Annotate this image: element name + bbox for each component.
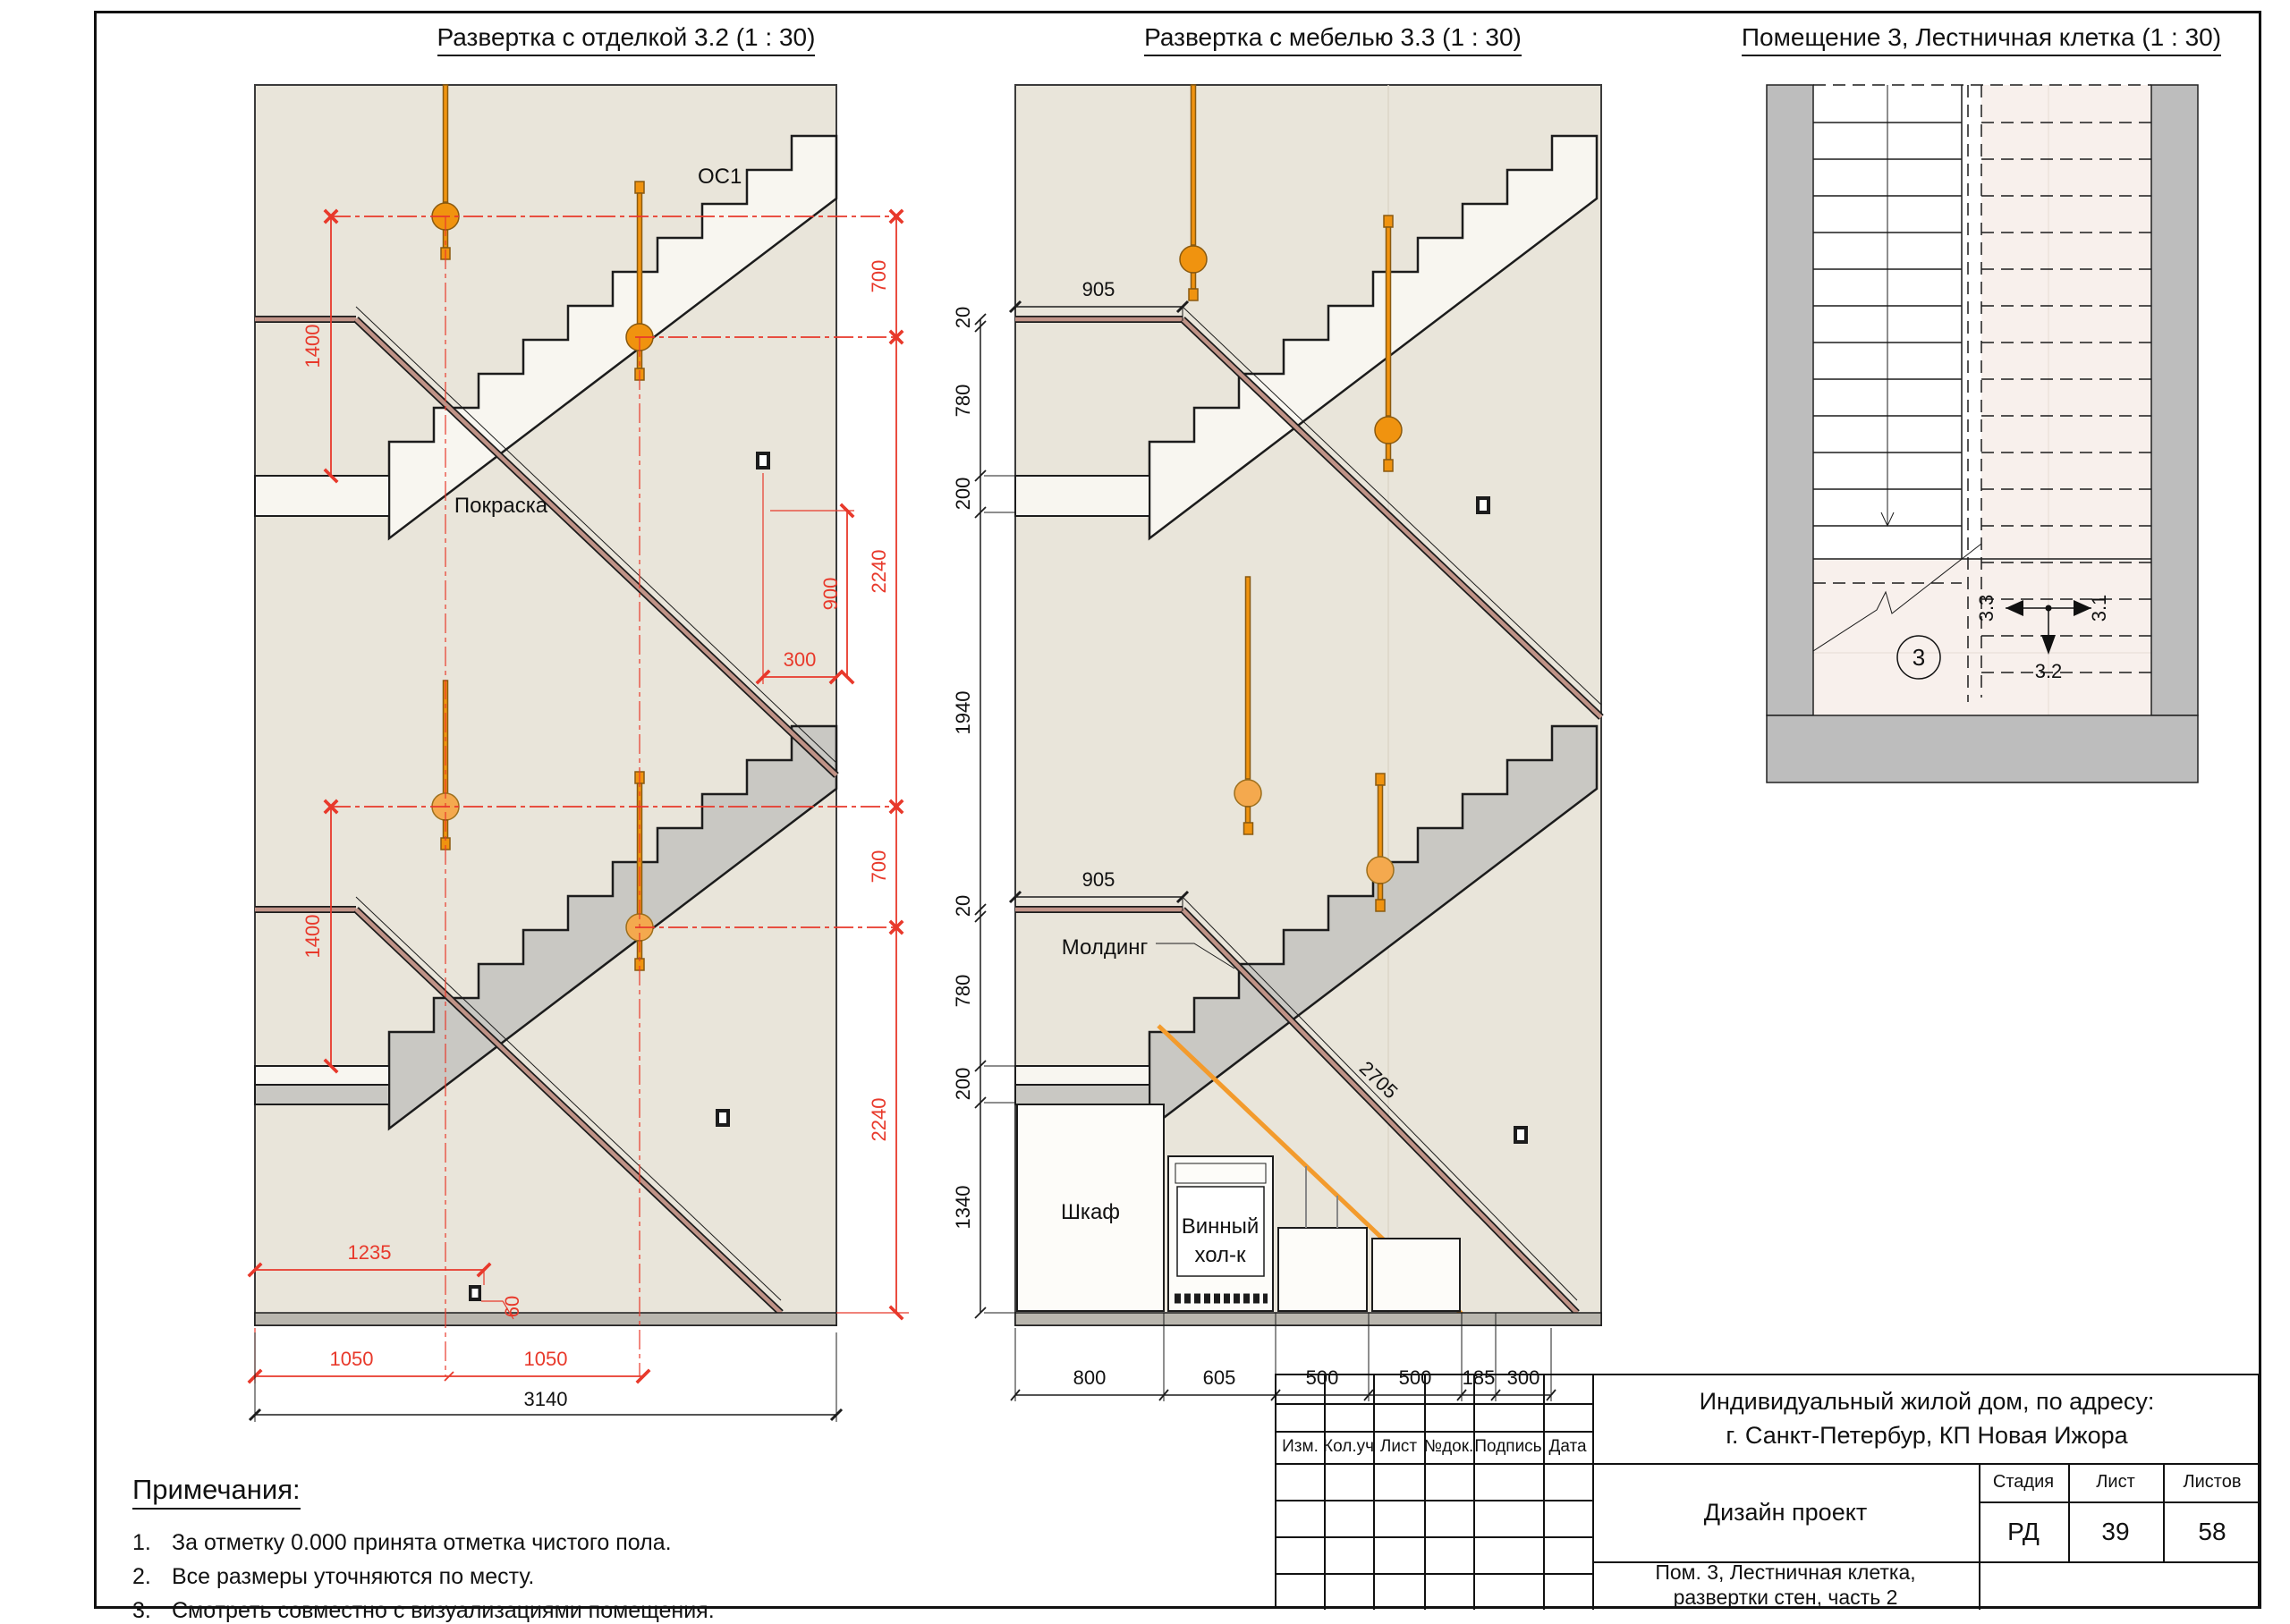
floor-slab [1015, 1313, 1601, 1325]
col-data: Дата [1543, 1431, 1592, 1463]
socket-floor-icon [469, 1285, 481, 1301]
label-molding: Молдинг [1062, 935, 1149, 960]
title-view-3-3-text: Развертка с мебелью 3.3 (1 : 30) [1144, 23, 1522, 56]
title-view-3-2-text: Развертка с отделкой 3.2 (1 : 30) [437, 23, 816, 56]
dim-60: 60 [501, 1296, 523, 1317]
dim-1235: 1235 [348, 1241, 392, 1264]
sheets-value: 58 [2163, 1501, 2261, 1561]
dim-700-upper: 700 [868, 260, 890, 293]
stage-value: РД [1979, 1501, 2068, 1561]
dim-3140: 3140 [524, 1388, 568, 1410]
upper-landing-slab [255, 476, 389, 516]
dim-1940: 1940 [952, 691, 974, 735]
dim-200-upper: 200 [952, 478, 974, 511]
dim-20-lower: 20 [952, 895, 974, 917]
dim-1050-right: 1050 [524, 1348, 568, 1370]
stage-label: Стадия [1979, 1463, 2068, 1501]
label-wine-fridge-1: Винный [1182, 1214, 1259, 1239]
title-view-3-3: Развертка с мебелью 3.3 (1 : 30) [1064, 23, 1601, 56]
col-podpis: Подпись [1473, 1431, 1543, 1463]
note-1-text: За отметку 0.000 принята отметка чистого… [172, 1530, 672, 1556]
lower-landing-soffit [255, 1085, 389, 1104]
project-line-1: Индивидуальный жилой дом, по адресу: [1700, 1385, 2155, 1419]
under-stair-box-2 [1372, 1239, 1460, 1311]
dim-1340: 1340 [952, 1186, 974, 1230]
sheet-title: Пом. 3, Лестничная клетка, развертки сте… [1592, 1561, 1979, 1610]
sheet-title-line-1: Пом. 3, Лестничная клетка, [1655, 1561, 1915, 1586]
middle-elevation-drawing: 905 905 20 780 200 1940 20 780 200 1340 … [930, 76, 1619, 1435]
under-stair-box-1 [1278, 1228, 1367, 1311]
label-oc1: ОС1 [698, 165, 742, 189]
socket-lower-icon [1514, 1126, 1528, 1144]
note-item-1: 1. За отметку 0.000 принята отметка чист… [132, 1530, 812, 1556]
title-plan-text: Помещение 3, Лестничная клетка (1 : 30) [1742, 23, 2221, 56]
dim-780-upper: 780 [952, 385, 974, 418]
notes-heading: Примечания: [132, 1474, 301, 1510]
right-wall [2151, 85, 2198, 715]
floor-slab [255, 1313, 836, 1325]
dim-1050-left: 1050 [330, 1348, 374, 1370]
note-2-text: Все размеры уточняются по месту. [172, 1564, 534, 1590]
sheet-label: Лист [2068, 1463, 2163, 1501]
dim-bottom-800: 800 [1073, 1366, 1107, 1389]
note-item-2: 2. Все размеры уточняются по месту. [132, 1564, 812, 1590]
left-wall [1767, 85, 1813, 715]
stair-plan-drawing: 3.3 3.1 3.2 3 [1753, 72, 2254, 805]
dim-2240-upper: 2240 [868, 550, 890, 594]
dim-20-upper: 20 [952, 307, 974, 328]
dim-200-lower: 200 [952, 1068, 974, 1101]
dim-1400-lower: 1400 [301, 915, 324, 959]
lower-landing-slab [1015, 1066, 1149, 1085]
dim-905-upper: 905 [1082, 278, 1115, 300]
dim-780-lower: 780 [952, 975, 974, 1008]
title-plan: Помещение 3, Лестничная клетка (1 : 30) [1713, 23, 2250, 56]
doc-type: Дизайн проект [1592, 1463, 1979, 1561]
ref-3-1: 3.1 [2088, 595, 2110, 622]
col-ndok: №док. [1424, 1431, 1473, 1463]
room-number: 3 [1913, 644, 1925, 671]
note-3-number: 3. [132, 1598, 172, 1624]
title-block: Изм. Кол.уч Лист №док. Подпись Дата Инди… [1275, 1374, 2260, 1608]
ref-3-3: 3.3 [1975, 595, 1997, 622]
label-cabinet: Шкаф [1061, 1200, 1120, 1224]
bottom-wall [1767, 715, 2198, 782]
socket-upper-icon [1476, 496, 1490, 514]
socket-upper-icon [756, 452, 770, 469]
note-2-number: 2. [132, 1564, 172, 1590]
upper-landing-slab [1015, 476, 1149, 516]
sheet-title-line-2: развертки стен, часть 2 [1674, 1586, 1898, 1611]
dim-300: 300 [784, 648, 817, 671]
ref-3-2: 3.2 [2035, 660, 2063, 682]
col-izm: Изм. [1276, 1431, 1324, 1463]
col-list: Лист [1373, 1431, 1424, 1463]
wall-surface [255, 85, 836, 1325]
left-elevation-drawing: ОС1 Покраска 1400 1400 700 2240 700 2240… [134, 76, 930, 1435]
note-3-text: Смотреть совместно с визуализациями поме… [172, 1598, 715, 1624]
sheet-value: 39 [2068, 1501, 2163, 1561]
dim-900: 900 [819, 578, 842, 611]
notes-block: Примечания: 1. За отметку 0.000 принята … [132, 1474, 812, 1624]
socket-lower-icon [716, 1109, 730, 1127]
label-wine-fridge-2: хол-к [1194, 1243, 1246, 1267]
title-view-3-2: Развертка с отделкой 3.2 (1 : 30) [358, 23, 895, 56]
project-name: Индивидуальный жилой дом, по адресу: г. … [1592, 1375, 2261, 1463]
dim-2240-lower: 2240 [868, 1098, 890, 1142]
project-line-2: г. Санкт-Петербур, КП Новая Ижора [1726, 1419, 2127, 1453]
note-item-3: 3. Смотреть совместно с визуализациями п… [132, 1598, 812, 1624]
lower-landing-slab [255, 1066, 389, 1085]
note-1-number: 1. [132, 1530, 172, 1556]
sheets-label: Листов [2163, 1463, 2261, 1501]
lower-landing-soffit [1015, 1085, 1149, 1104]
dim-bottom-605: 605 [1203, 1366, 1236, 1389]
dim-905-lower: 905 [1082, 868, 1115, 891]
col-koluch: Кол.уч [1324, 1431, 1373, 1463]
dim-700-lower: 700 [868, 850, 890, 884]
label-paint: Покраска [454, 494, 548, 518]
dim-1400-upper: 1400 [301, 325, 324, 368]
